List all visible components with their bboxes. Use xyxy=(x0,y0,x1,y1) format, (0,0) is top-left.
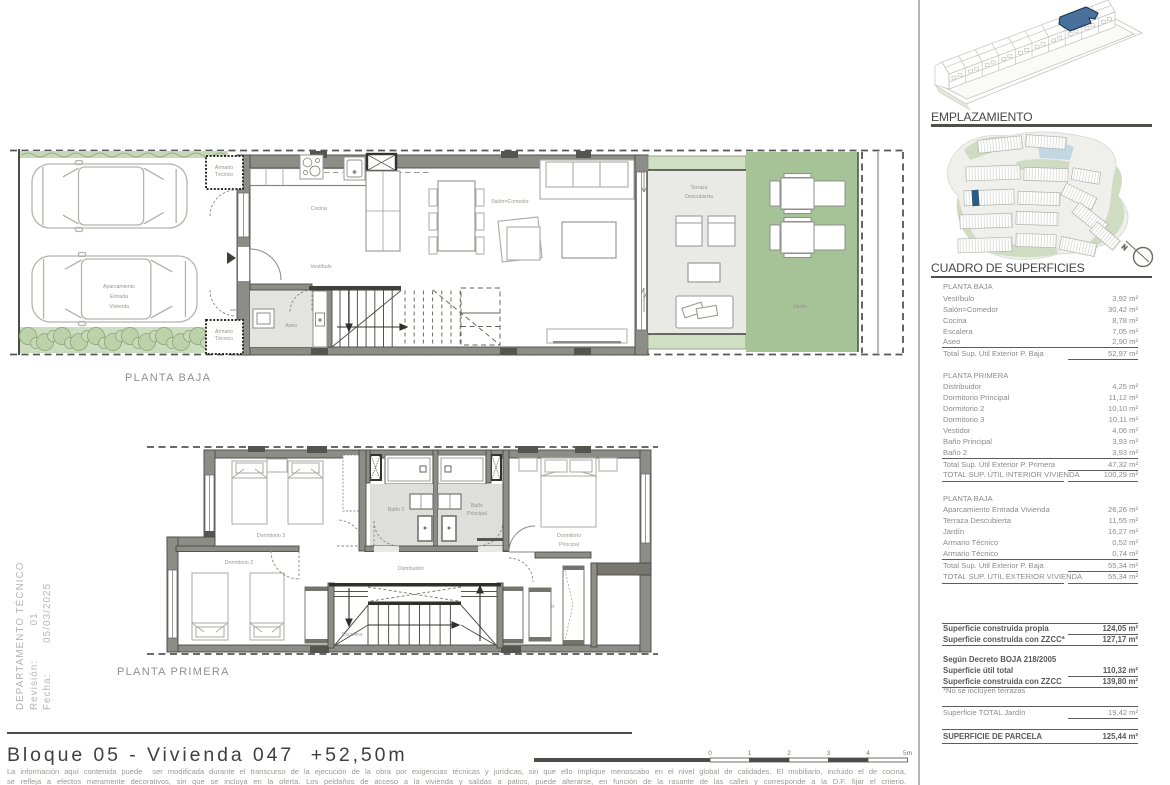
svg-text:5m: 5m xyxy=(903,750,912,757)
svg-text:Vivienda: Vivienda xyxy=(109,304,129,310)
svg-text:Entrada: Entrada xyxy=(110,294,128,300)
svg-text:Distribuidor: Distribuidor xyxy=(398,566,425,572)
svg-text:2: 2 xyxy=(787,750,791,757)
svg-text:3: 3 xyxy=(827,750,831,757)
svg-text:Armario: Armario xyxy=(215,165,233,171)
svg-text:Escalera: Escalera xyxy=(342,632,362,638)
svg-text:Dormitorio: Dormitorio xyxy=(557,533,581,539)
svg-text:Jardín: Jardín xyxy=(793,304,808,310)
svg-text:Dormitorio 3: Dormitorio 3 xyxy=(257,533,285,539)
svg-text:Terraza: Terraza xyxy=(690,185,707,191)
svg-text:Principal: Principal xyxy=(559,542,579,548)
svg-text:0: 0 xyxy=(708,750,712,757)
svg-text:Dormitorio 2: Dormitorio 2 xyxy=(225,560,253,566)
svg-text:N: N xyxy=(1120,244,1128,253)
svg-text:Armario: Armario xyxy=(215,329,233,335)
svg-text:Cocina: Cocina xyxy=(311,206,327,212)
svg-text:Salón=Comedor: Salón=Comedor xyxy=(491,199,529,205)
svg-text:Descubierta: Descubierta xyxy=(685,194,713,200)
svg-text:Baño 2: Baño 2 xyxy=(388,507,405,513)
svg-text:Aseo: Aseo xyxy=(285,323,297,329)
svg-text:Principal: Principal xyxy=(467,511,487,517)
svg-text:Técnico: Técnico xyxy=(215,172,233,178)
svg-text:Técnico: Técnico xyxy=(215,336,233,342)
svg-text:Vestíbulo: Vestíbulo xyxy=(310,264,331,270)
svg-text:4: 4 xyxy=(866,750,870,757)
svg-text:1: 1 xyxy=(748,750,752,757)
svg-text:Aparcamiento: Aparcamiento xyxy=(103,284,135,290)
svg-text:Baño: Baño xyxy=(471,503,483,509)
